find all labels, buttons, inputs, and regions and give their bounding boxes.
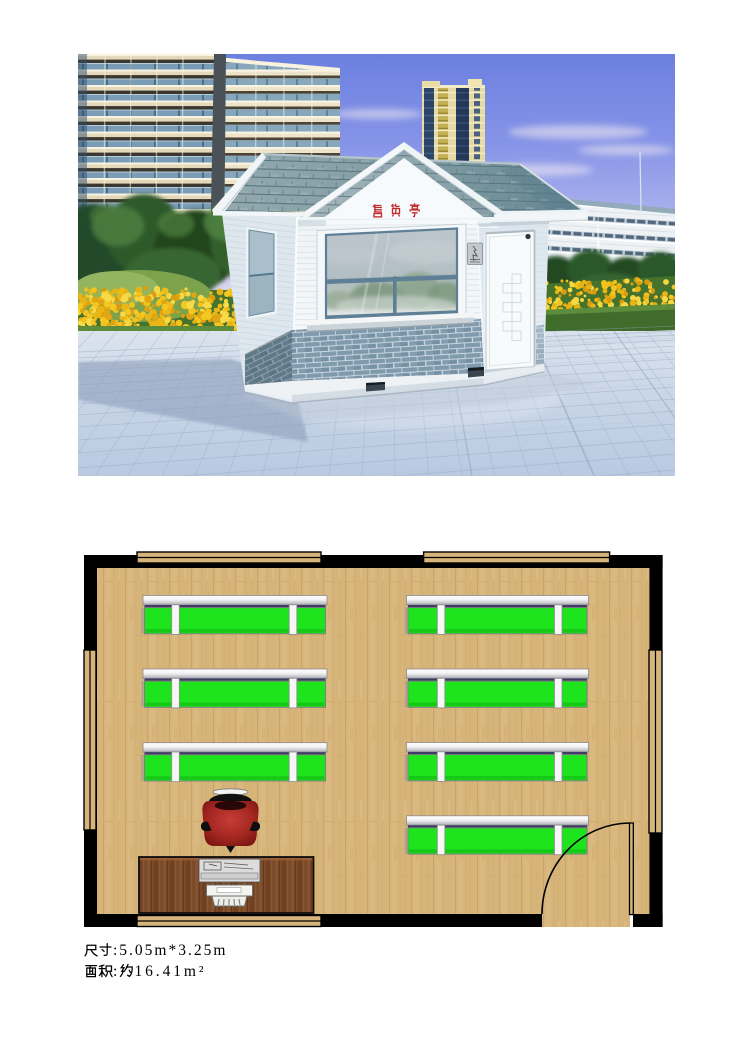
- svg-text:16.41m²: 16.41m²: [135, 963, 207, 980]
- svg-text::5.05m*3.25m: :5.05m*3.25m: [113, 942, 227, 959]
- svg-text::: :: [113, 963, 119, 980]
